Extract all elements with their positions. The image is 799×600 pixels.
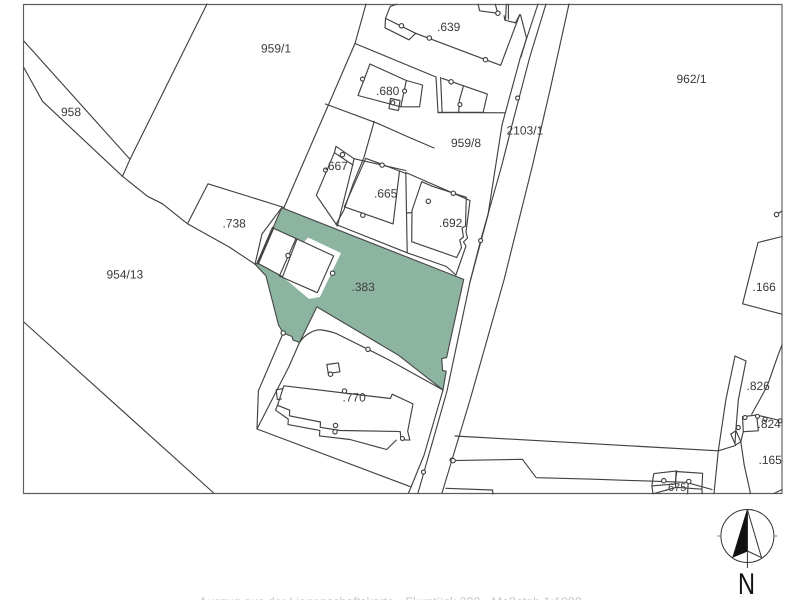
- svg-text:.383: .383: [352, 280, 376, 294]
- svg-text:2103/1: 2103/1: [507, 124, 544, 138]
- svg-text:.165: .165: [759, 453, 783, 467]
- svg-text:.826: .826: [747, 379, 771, 393]
- svg-text:.770: .770: [343, 391, 367, 405]
- svg-text:.738: .738: [223, 217, 247, 231]
- svg-text:.665: .665: [374, 187, 398, 201]
- svg-text:.692: .692: [439, 216, 463, 230]
- svg-text:959/8: 959/8: [451, 136, 481, 150]
- svg-text:954/13: 954/13: [107, 268, 144, 282]
- svg-text:962/1: 962/1: [677, 72, 707, 86]
- svg-text:.824: .824: [758, 417, 782, 431]
- svg-text:Auszug aus der Liegenschaftska: Auszug aus der Liegenschaftskarte · Flur…: [199, 595, 582, 600]
- svg-text:958: 958: [61, 105, 81, 119]
- svg-text:.166: .166: [753, 280, 777, 294]
- svg-text:.680: .680: [376, 84, 400, 98]
- svg-text:.675: .675: [665, 482, 686, 494]
- svg-text:N: N: [738, 568, 755, 600]
- svg-text:.639: .639: [437, 20, 461, 34]
- svg-text:.667: .667: [325, 159, 349, 173]
- svg-text:959/1: 959/1: [261, 42, 291, 56]
